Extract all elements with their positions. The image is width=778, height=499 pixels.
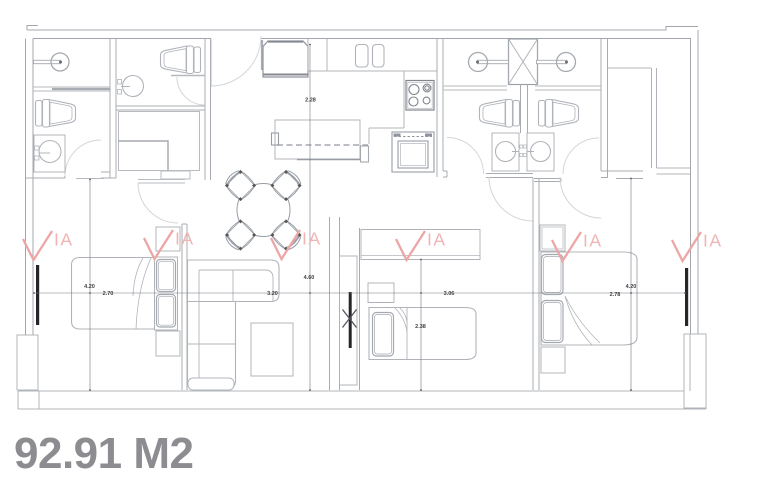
svg-text:3.06: 3.06	[444, 291, 455, 297]
svg-text:2.38: 2.38	[415, 324, 426, 330]
svg-text:4.20: 4.20	[626, 284, 637, 290]
svg-text:2.70: 2.70	[103, 291, 114, 297]
svg-text:92.91 M2: 92.91 M2	[14, 429, 193, 478]
svg-text:4.60: 4.60	[304, 275, 315, 281]
svg-text:4.20: 4.20	[84, 284, 95, 290]
svg-text:2.78: 2.78	[610, 292, 621, 298]
svg-text:3.20: 3.20	[267, 291, 278, 297]
svg-text:2.28: 2.28	[305, 98, 316, 104]
